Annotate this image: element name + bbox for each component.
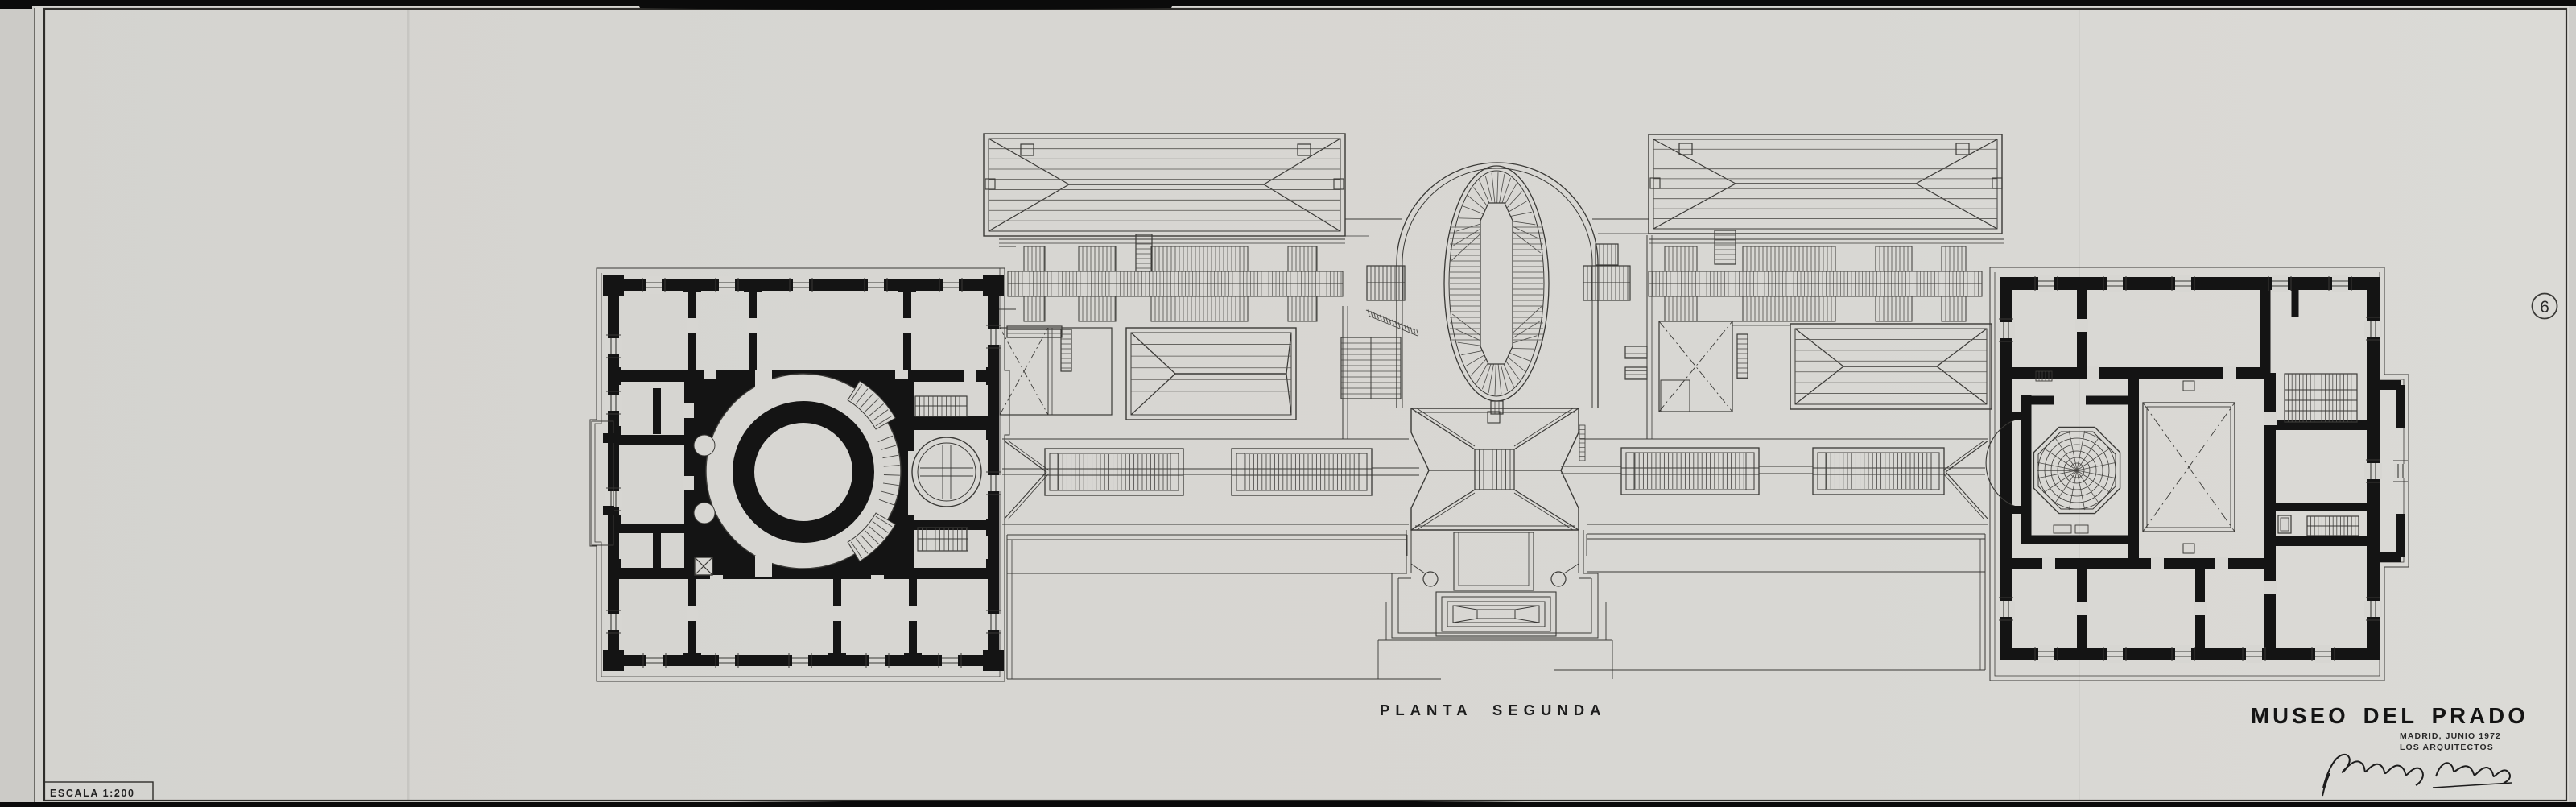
svg-text:LOS ARQUITECTOS: LOS ARQUITECTOS	[2400, 743, 2494, 752]
svg-text:PLANTA SEGUNDA: PLANTA SEGUNDA	[1380, 701, 1606, 718]
svg-text:MUSEO DEL PRADO: MUSEO DEL PRADO	[2251, 703, 2529, 728]
svg-text:6: 6	[2540, 298, 2549, 317]
svg-text:ESCALA 1:200: ESCALA 1:200	[50, 788, 135, 799]
svg-text:MADRID, JUNIO 1972: MADRID, JUNIO 1972	[2400, 731, 2501, 741]
